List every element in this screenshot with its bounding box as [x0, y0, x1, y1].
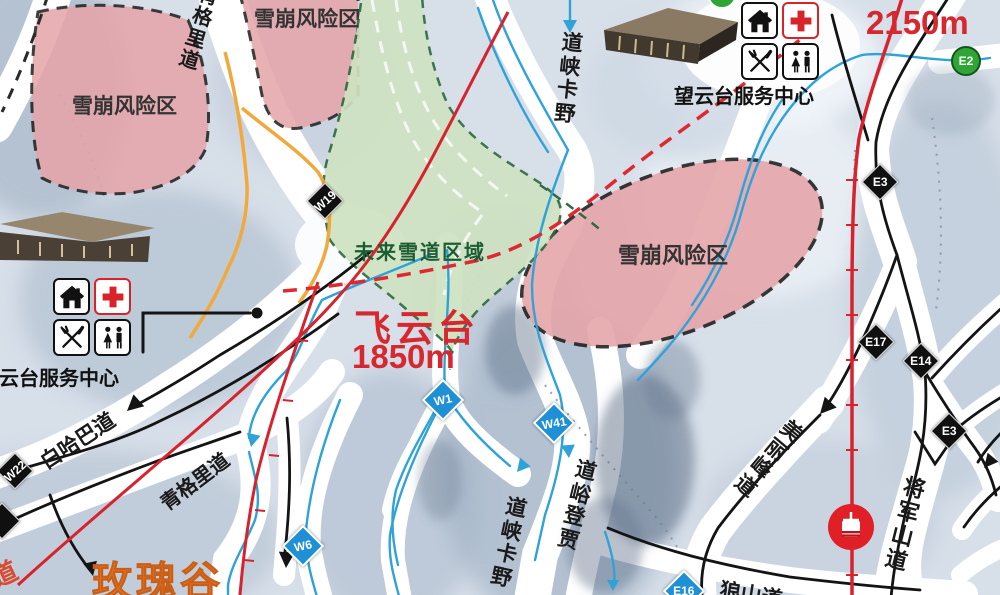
service-icons-wangyuntai — [741, 2, 819, 80]
trail-marker-E14: E14 — [908, 348, 934, 374]
restroom-icon — [782, 43, 819, 80]
dining-icon — [741, 43, 778, 80]
home-icon — [741, 2, 778, 39]
restroom-icon — [94, 319, 131, 356]
valley-label: 玫瑰谷 — [92, 549, 224, 595]
trail-marker-E3: E3 — [867, 169, 893, 195]
service-center-label-feiyuntai: 飞云台服务中心 — [0, 362, 119, 391]
trail-marker-unlabeled — [0, 508, 15, 534]
trail-marker-E2: E2 — [951, 46, 981, 76]
trail-marker-W19: W19 — [312, 188, 338, 214]
trail-marker-W22: W22 — [2, 458, 28, 484]
avalanche-zone-label: 雪崩风险区 — [618, 238, 728, 270]
first-aid-icon — [782, 2, 819, 39]
dining-icon — [53, 319, 90, 356]
avalanche-zone-label: 雪崩风险区 — [72, 90, 177, 120]
service-icons-feiyuntai — [53, 278, 131, 356]
gondola-icon — [828, 504, 874, 550]
trail-marker-W1: W1 — [428, 385, 458, 415]
trail-marker-E17: E17 — [863, 329, 889, 355]
trail-marker-W41: W41 — [539, 408, 569, 438]
first-aid-icon — [94, 278, 131, 315]
service-center-label-wangyuntai: 望云台服务中心 — [674, 80, 814, 109]
avalanche-zone-label: 雪崩风险区 — [254, 3, 359, 33]
trail-marker-E16: E16 — [669, 576, 699, 595]
future-trails-label: 未来雪道区域 — [354, 236, 486, 265]
summit-elevation-label: 2150m — [866, 4, 969, 42]
home-icon — [53, 278, 90, 315]
peak-elevation-label: 1850m — [352, 338, 455, 376]
ski-trail-map[interactable]: 雪崩风险区 雪崩风险区 雪崩风险区 未来雪道区域 飞云台 1850m 2150m… — [0, 0, 1000, 595]
trail-marker-W6: W6 — [288, 531, 318, 561]
trail-marker-E3: E3 — [936, 418, 962, 444]
service-center-location-dot — [252, 308, 263, 319]
